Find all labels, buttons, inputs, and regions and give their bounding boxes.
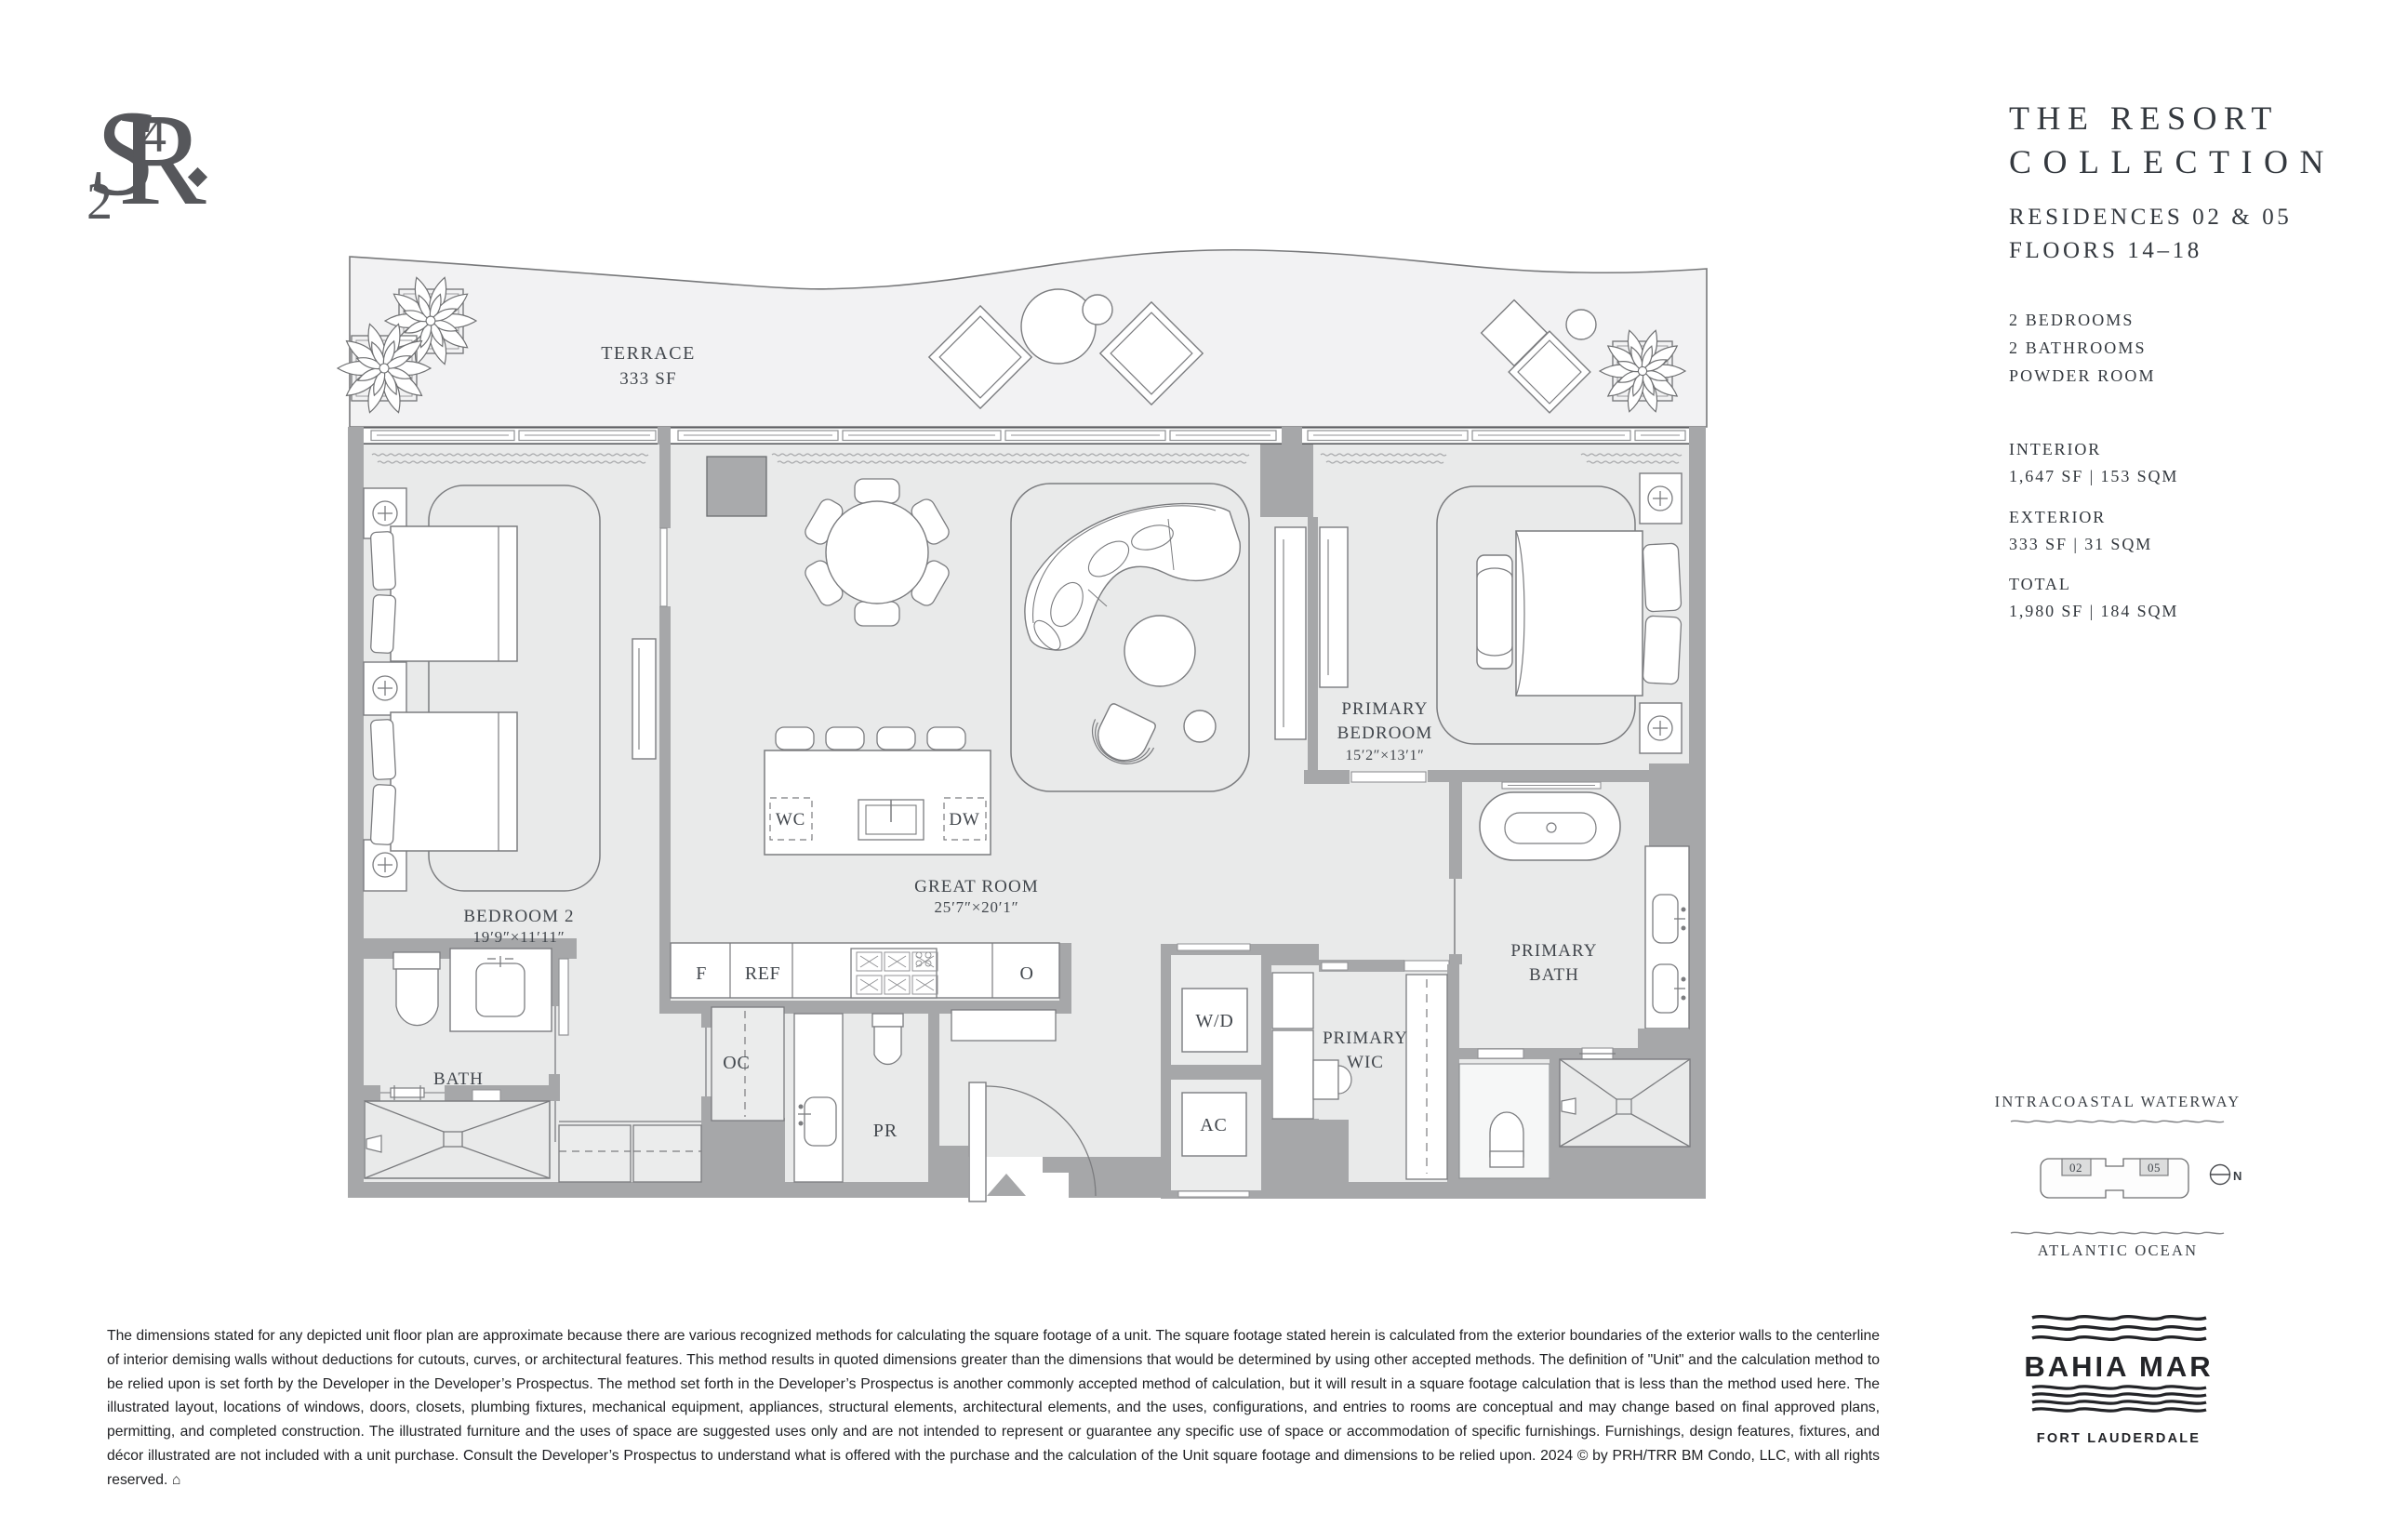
- svg-text:O: O: [1020, 963, 1034, 984]
- svg-text:REF: REF: [745, 963, 780, 984]
- svg-text:25′7″×20′1″: 25′7″×20′1″: [935, 898, 1019, 916]
- svg-text:F: F: [696, 963, 707, 984]
- svg-text:GREAT ROOM: GREAT ROOM: [914, 877, 1039, 896]
- svg-text:TERRACE: TERRACE: [601, 343, 696, 364]
- svg-text:DW: DW: [949, 810, 979, 830]
- svg-text:05: 05: [2148, 1161, 2161, 1175]
- svg-text:OC: OC: [723, 1053, 750, 1073]
- svg-text:ATLANTIC OCEAN: ATLANTIC OCEAN: [2038, 1241, 2198, 1259]
- svg-text:BATH: BATH: [1529, 965, 1579, 985]
- svg-text:BAHIA MAR: BAHIA MAR: [2024, 1350, 2213, 1383]
- svg-text:WC: WC: [776, 810, 805, 830]
- svg-text:AC: AC: [1200, 1115, 1227, 1135]
- svg-text:N: N: [2233, 1169, 2241, 1183]
- svg-text:4: 4: [141, 107, 166, 163]
- svg-text:BEDROOM: BEDROOM: [1337, 724, 1433, 743]
- svg-text:W/D: W/D: [1195, 1011, 1233, 1031]
- svg-text:19′9″×11′11″: 19′9″×11′11″: [472, 928, 565, 946]
- svg-text:PRIMARY: PRIMARY: [1341, 699, 1428, 719]
- svg-text:333 SF: 333 SF: [619, 369, 677, 389]
- svg-text:WIC: WIC: [1347, 1053, 1384, 1072]
- svg-text:INTRACOASTAL WATERWAY: INTRACOASTAL WATERWAY: [1995, 1093, 2241, 1110]
- svg-text:PR: PR: [873, 1121, 898, 1141]
- svg-text:2: 2: [86, 173, 113, 231]
- svg-text:FORT LAUDERDALE: FORT LAUDERDALE: [2037, 1431, 2201, 1446]
- svg-text:PRIMARY: PRIMARY: [1323, 1029, 1408, 1048]
- svg-text:PRIMARY: PRIMARY: [1510, 941, 1597, 961]
- svg-text:02: 02: [2069, 1161, 2082, 1175]
- svg-text:15′2″×13′1″: 15′2″×13′1″: [1345, 748, 1424, 763]
- svg-text:BATH: BATH: [433, 1069, 484, 1089]
- svg-text:BEDROOM 2: BEDROOM 2: [463, 907, 574, 926]
